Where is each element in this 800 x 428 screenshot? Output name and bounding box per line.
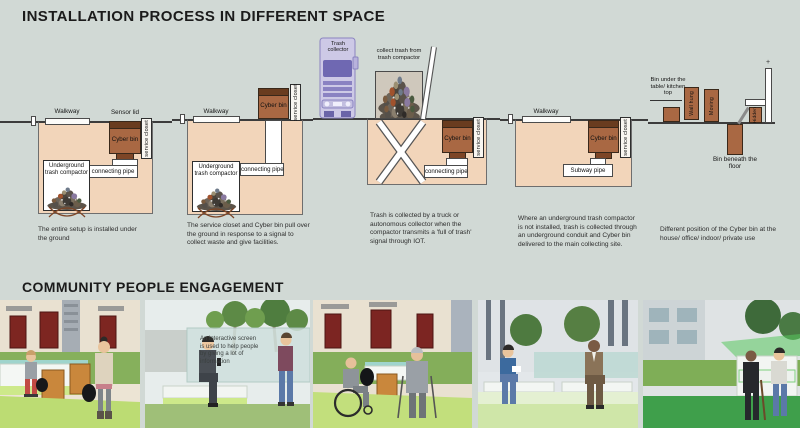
bin-hidden: Hidden xyxy=(749,107,762,123)
glass-edge xyxy=(0,360,88,364)
bench xyxy=(484,382,554,392)
caption-5: Different position of the Cyber bin at t… xyxy=(660,226,792,243)
hidden-label: Hidden xyxy=(753,107,758,123)
bin-wall-hung: Wall hung xyxy=(684,87,699,120)
wall-post xyxy=(765,68,772,123)
tower-building xyxy=(451,300,472,358)
bin-under-table xyxy=(663,107,680,122)
tree xyxy=(564,306,600,342)
photo-child-and-woman-disposing xyxy=(0,300,140,428)
photo-men-at-green-canopy xyxy=(643,300,800,428)
trash-bag xyxy=(36,378,48,392)
book xyxy=(512,366,521,372)
photo-people-on-bench xyxy=(478,300,638,428)
interactive-screen-note: An interactive screen is used to help pe… xyxy=(200,336,262,366)
trash-bag xyxy=(82,384,96,402)
poster: INSTALLATION PROCESS IN DIFFERENT SPACE … xyxy=(0,0,800,428)
bench xyxy=(163,386,247,398)
bin-moving: Moving xyxy=(704,89,719,122)
concrete-wall xyxy=(145,330,187,372)
wall-hung-label: Wall hung xyxy=(689,91,695,116)
moving-label: Moving xyxy=(709,97,715,115)
photo-wheelchair-user xyxy=(313,300,472,428)
trash-bag xyxy=(360,368,374,386)
label-underline xyxy=(650,100,682,101)
counter-slab xyxy=(745,99,766,106)
bin-beneath-floor xyxy=(727,124,743,155)
plus-mark: + xyxy=(766,59,770,66)
floor xyxy=(145,404,310,428)
beneath-floor-label: Bin beneath the floor xyxy=(711,156,759,170)
tree xyxy=(510,314,542,346)
